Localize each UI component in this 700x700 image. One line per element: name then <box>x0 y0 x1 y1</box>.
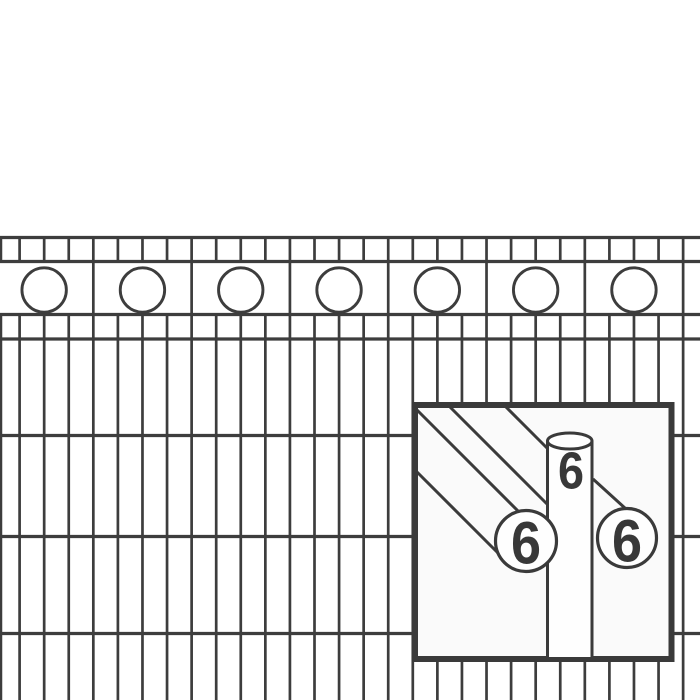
wire-diameter-label: 6 <box>612 508 642 575</box>
fence-scene: 666 <box>0 0 700 700</box>
wire-diameter-label: 6 <box>511 510 541 577</box>
detail-inset: 666 <box>413 405 672 659</box>
product-illustration: 666 <box>0 0 700 700</box>
wire-diameter-label: 6 <box>558 442 584 500</box>
